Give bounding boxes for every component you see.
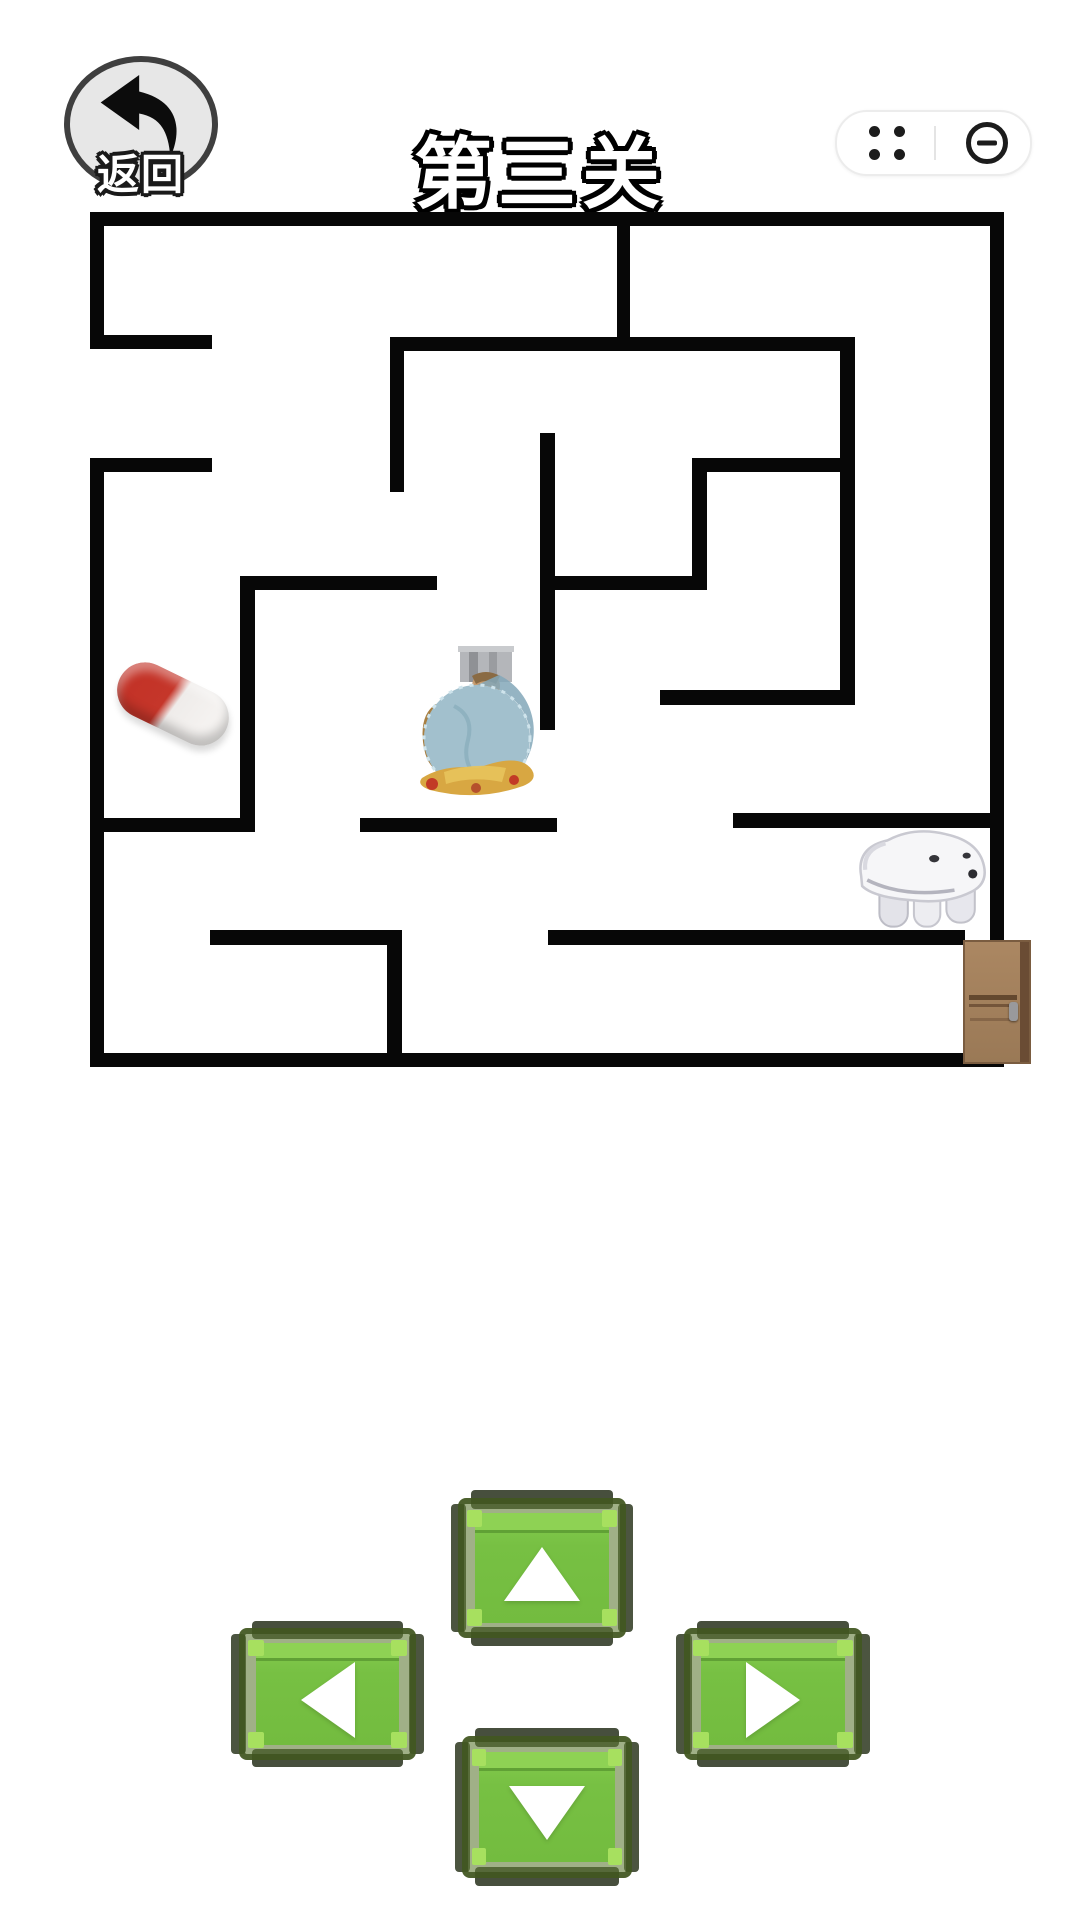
maze-wall bbox=[692, 458, 855, 472]
button-corner-tab bbox=[608, 1749, 623, 1766]
player-statue-sprite bbox=[414, 646, 540, 798]
maze-wall bbox=[617, 212, 630, 338]
maze-wall bbox=[90, 335, 212, 349]
maze-wall bbox=[240, 576, 437, 590]
button-corner-tab bbox=[602, 1609, 617, 1626]
arrow-right-icon bbox=[746, 1662, 800, 1738]
exit-door bbox=[963, 940, 1031, 1064]
arrow-down-icon bbox=[509, 1786, 585, 1840]
maze-wall bbox=[90, 212, 104, 348]
button-corner-tab bbox=[693, 1732, 709, 1748]
door-handle-icon bbox=[1009, 1002, 1018, 1021]
maze-wall bbox=[90, 1053, 1004, 1067]
door-panel-line bbox=[969, 995, 1018, 1000]
maze-wall bbox=[387, 930, 402, 1067]
white-creature-sprite bbox=[851, 829, 989, 933]
button-corner-tab bbox=[472, 1749, 487, 1766]
maze-wall bbox=[692, 458, 707, 590]
button-corner-tab bbox=[608, 1848, 623, 1865]
dpad-left-button[interactable] bbox=[231, 1621, 424, 1767]
arrow-left-icon bbox=[301, 1662, 355, 1738]
dpad-down-button[interactable] bbox=[455, 1728, 639, 1886]
menu-dots-icon[interactable] bbox=[869, 126, 905, 160]
creature-graphic bbox=[851, 829, 989, 933]
maze-wall bbox=[990, 212, 1004, 1067]
button-corner-tab bbox=[467, 1609, 482, 1626]
maze-wall bbox=[540, 433, 555, 730]
minimize-icon[interactable] bbox=[966, 122, 1008, 164]
capsule-divider bbox=[934, 126, 936, 160]
maze-wall bbox=[390, 337, 855, 351]
button-corner-tab bbox=[693, 1640, 709, 1656]
maze-wall bbox=[90, 818, 255, 832]
pill-item bbox=[110, 658, 236, 750]
maze-wall bbox=[733, 813, 1004, 828]
maze-wall bbox=[540, 576, 707, 590]
mini-program-capsule bbox=[835, 110, 1032, 176]
button-corner-tab bbox=[837, 1640, 853, 1656]
maze-wall bbox=[90, 458, 212, 472]
pill-capsule-shape bbox=[108, 653, 239, 755]
door-frame-edge bbox=[1020, 942, 1029, 1062]
maze-wall bbox=[210, 930, 402, 945]
dpad-right-button[interactable] bbox=[676, 1621, 870, 1767]
maze-wall bbox=[90, 458, 104, 1067]
button-corner-tab bbox=[391, 1640, 406, 1656]
button-corner-tab bbox=[391, 1732, 406, 1748]
button-corner-tab bbox=[837, 1732, 853, 1748]
button-corner-tab bbox=[472, 1848, 487, 1865]
maze-wall bbox=[660, 690, 855, 705]
button-corner-tab bbox=[467, 1510, 482, 1527]
statue-graphic bbox=[414, 646, 540, 798]
maze-wall bbox=[90, 212, 1004, 226]
maze-wall bbox=[390, 337, 404, 492]
button-corner-tab bbox=[248, 1732, 263, 1748]
button-corner-tab bbox=[248, 1640, 263, 1656]
button-corner-tab bbox=[602, 1510, 617, 1527]
arrow-up-icon bbox=[504, 1547, 580, 1601]
maze-wall bbox=[840, 337, 855, 705]
maze-wall bbox=[240, 576, 255, 832]
dpad-up-button[interactable] bbox=[451, 1490, 633, 1646]
game-screen: 返回 第三关 bbox=[0, 0, 1080, 1920]
maze-wall bbox=[360, 818, 557, 832]
